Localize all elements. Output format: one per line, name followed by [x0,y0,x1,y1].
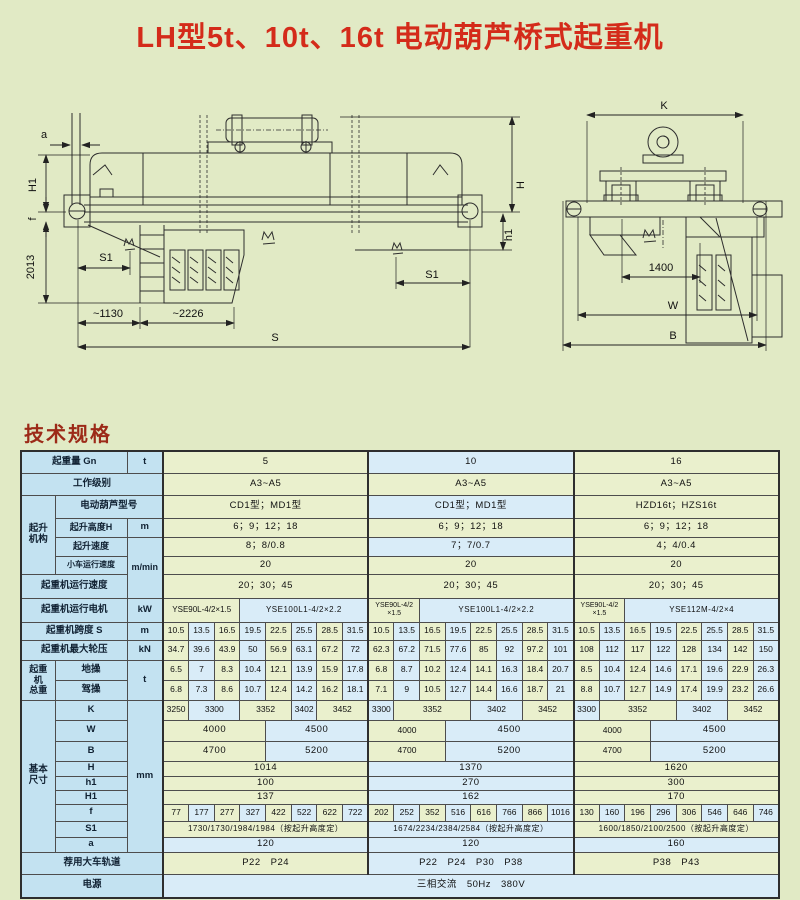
spec-label-cell: 起重机跨度 S [21,622,127,640]
dim-label-W: W [668,300,679,312]
spec-value-cell: 13.5 [394,622,420,640]
dim-label-f: f [27,217,39,221]
spec-value-cell: 120 [163,837,368,852]
spec-value-cell: 1730/1730/1984/1984（按起升高度定） [163,821,368,837]
spec-value-cell: 3402 [471,700,522,720]
spec-label-cell: mm [127,700,163,852]
spec-value-cell: 202 [368,804,394,821]
front-view-drawing: a H1 f 2013 S1 ~1130 ~2226 S H h1 S1 [25,113,527,347]
spec-value-cell: 19.9 [702,680,728,700]
spec-value-cell: 3300 [189,700,240,720]
spec-value-cell: 三相交流 50Hz 380V [163,874,779,898]
spec-value-cell: 21 [548,680,574,700]
spec-value-cell: 10.5 [574,622,600,640]
spec-value-cell: 300 [574,776,780,790]
spec-value-cell: 327 [240,804,266,821]
spec-value-cell: 277 [214,804,240,821]
spec-value-cell: 3300 [368,700,394,720]
spec-label-cell: B [55,741,127,761]
spec-value-cell: 14.2 [291,680,317,700]
spec-value-cell: 6.8 [368,660,394,680]
spec-value-cell: CD1型；MD1型 [368,495,573,518]
spec-value-cell: 8；8/0.8 [163,537,368,556]
spec-value-cell: 3300 [574,700,600,720]
spec-value-cell: 19.6 [702,660,728,680]
spec-value-cell: 19.5 [650,622,676,640]
spec-value-cell: 270 [368,776,573,790]
spec-value-cell: 196 [625,804,651,821]
dim-label-1400: 1400 [649,262,673,274]
dim-label-2013: 2013 [25,255,37,279]
spec-value-cell: 4；4/0.4 [574,537,780,556]
dim-label-S: S [271,332,278,344]
spec-value-cell: 6；9；12；18 [574,518,780,537]
spec-value-cell: 137 [163,790,368,804]
spec-value-cell: 4500 [266,720,369,741]
spec-value-cell: 296 [650,804,676,821]
spec-value-cell: 18.1 [343,680,369,700]
dim-label-B: B [669,330,676,342]
spec-label-cell: m/min [127,537,163,598]
spec-value-cell: 10.5 [163,622,189,640]
spec-value-cell: 7 [189,660,215,680]
spec-value-cell: 8.8 [574,680,600,700]
spec-value-cell: 16.5 [625,622,651,640]
section-mark [124,232,403,254]
cab-end-view [686,218,782,343]
spec-label-cell: W [55,720,127,741]
spec-value-cell: 866 [522,804,548,821]
spec-label-cell: t [127,451,163,473]
spec-value-cell: 50 [240,640,266,660]
spec-value-cell: 6.8 [163,680,189,700]
spec-value-cell: YSE100L1-4/2×2.2 [240,598,368,622]
spec-value-cell: CD1型；MD1型 [163,495,368,518]
spec-value-cell: 22.5 [676,622,702,640]
spec-value-cell: A3~A5 [163,473,368,495]
dim-label-S1-right: S1 [425,269,438,281]
spec-value-cell: 13.9 [291,660,317,680]
spec-value-cell: 130 [574,804,600,821]
spec-value-cell: 1600/1850/2100/2500（按起升高度定） [574,821,780,837]
spec-value-cell: P22 P24 [163,852,368,874]
spec-value-cell: 22.5 [471,622,497,640]
spec-value-cell: 3352 [394,700,471,720]
spec-value-cell: 722 [343,804,369,821]
section-mark [643,230,656,242]
dim-label-H1: H1 [27,178,39,192]
spec-value-cell: 100 [163,776,368,790]
spec-value-cell: YSE100L1-4/2×2.2 [420,598,574,622]
spec-value-cell: 63.1 [291,640,317,660]
spec-label-cell: 起升 机构 [21,495,55,574]
trolley-crossbeam [600,171,726,181]
spec-value-cell: 92 [497,640,523,660]
technical-drawings: a H1 f 2013 S1 ~1130 ~2226 S H h1 S1 [0,85,800,415]
spec-value-cell: 4000 [368,720,445,741]
spec-value-cell: 160 [599,804,625,821]
spec-value-cell: 8.3 [214,660,240,680]
spec-value-cell: 3402 [291,700,317,720]
spec-value-cell: 1674/2234/2384/2584（按起升高度定） [368,821,573,837]
bridge-platform [566,201,782,217]
spec-value-cell: 7.3 [189,680,215,700]
dim-label-K: K [660,100,668,112]
spec-value-cell: 112 [599,640,625,660]
spec-value-cell: 6；9；12；18 [163,518,368,537]
spec-value-cell: 128 [676,640,702,660]
spec-value-cell: 28.5 [317,622,343,640]
spec-value-cell: 122 [650,640,676,660]
spec-value-cell: 12.7 [445,680,471,700]
spec-value-cell: 56.9 [266,640,292,660]
dim-label-1130: ~1130 [93,308,123,320]
spec-value-cell: 26.6 [753,680,779,700]
spec-value-cell: 85 [471,640,497,660]
spec-value-cell: 19.5 [445,622,471,640]
spec-value-cell: 39.6 [189,640,215,660]
spec-value-cell: 10 [368,451,573,473]
catalog-page: { "header": { "title": "LH型5t、10t、16t 电动… [0,0,800,900]
spec-label-cell: 起重机运行速度 [21,574,127,598]
spec-value-cell: 16.6 [497,680,523,700]
spec-label-cell: m [127,518,163,537]
spec-label-cell: 荐用大车轨道 [21,852,163,874]
spec-value-cell: 20.7 [548,660,574,680]
spec-value-cell: 22.5 [266,622,292,640]
spec-value-cell: 522 [291,804,317,821]
spec-value-cell: 12.4 [266,680,292,700]
spec-value-cell: 28.5 [522,622,548,640]
spec-value-cell: 108 [574,640,600,660]
dim-label-S1-left: S1 [99,252,112,264]
spec-value-cell: 20；30；45 [574,574,780,598]
spec-label-cell: 起升速度 [55,537,127,556]
spec-label-cell: t [127,660,163,700]
spec-value-cell: 28.5 [727,622,753,640]
spec-value-cell: 3250 [163,700,189,720]
spec-value-cell: 622 [317,804,343,821]
spec-value-cell: 31.5 [548,622,574,640]
spec-value-cell: 6.5 [163,660,189,680]
hoist-motor [648,127,678,157]
spec-label-cell: 驾操 [55,680,127,700]
spec-label-cell: S1 [55,821,127,837]
spec-value-cell: 422 [266,804,292,821]
spec-value-cell: 13.5 [189,622,215,640]
spec-value-cell: 31.5 [343,622,369,640]
spec-value-cell: 10.2 [420,660,446,680]
spec-value-cell: YSE112M-4/2×4 [625,598,779,622]
spec-value-cell: 7；7/0.7 [368,537,573,556]
spec-value-cell: 8.7 [394,660,420,680]
spec-value-cell: 20；30；45 [163,574,368,598]
spec-value-cell: 34.7 [163,640,189,660]
spec-value-cell: 150 [753,640,779,660]
spec-value-cell: 71.5 [420,640,446,660]
spec-value-cell: 5 [163,451,368,473]
spec-label-cell: f [55,804,127,821]
spec-value-cell: 4700 [368,741,445,761]
page-title: LH型5t、10t、16t 电动葫芦桥式起重机 [0,14,800,56]
spec-value-cell: 8.5 [574,660,600,680]
spec-value-cell: 120 [368,837,573,852]
spec-value-cell: 14.1 [471,660,497,680]
spec-value-cell: 5200 [266,741,369,761]
spec-value-cell: YSE90L-4/2 ×1.5 [368,598,419,622]
spec-value-cell: 1014 [163,761,368,776]
spec-value-cell: 16.3 [497,660,523,680]
spec-value-cell: A3~A5 [574,473,780,495]
section-heading: 技术规格 [24,418,112,447]
spec-value-cell: P38 P43 [574,852,780,874]
spec-value-cell: 20；30；45 [368,574,573,598]
spec-value-cell: 18.7 [522,680,548,700]
spec-value-cell: 15.9 [317,660,343,680]
spec-value-cell: 177 [189,804,215,821]
spec-value-cell: 4700 [574,741,651,761]
spec-value-cell: 646 [727,804,753,821]
spec-value-cell: 72 [343,640,369,660]
spec-value-cell: 3402 [676,700,727,720]
spec-label-cell: H1 [55,790,127,804]
bridge-wheel [462,203,478,219]
spec-value-cell: 134 [702,640,728,660]
spec-value-cell: 67.2 [317,640,343,660]
spec-value-cell: 746 [753,804,779,821]
spec-value-cell: 20 [574,556,780,574]
spec-value-cell: 10.4 [240,660,266,680]
cab [164,230,244,303]
spec-label-cell: 电动葫芦型号 [55,495,163,518]
spec-value-cell: 16.2 [317,680,343,700]
spec-label-cell: kN [127,640,163,660]
spec-label-cell: K [55,700,127,720]
dim-label-2226: ~2226 [173,308,204,320]
spec-value-cell: 14.6 [650,660,676,680]
spec-value-cell: 18.4 [522,660,548,680]
spec-value-cell: 10.5 [420,680,446,700]
spec-value-cell: 19.5 [240,622,266,640]
spec-value-cell: 3352 [599,700,676,720]
spec-value-cell: 12.1 [266,660,292,680]
spec-value-cell: 12.4 [445,660,471,680]
spec-value-cell: 16.5 [420,622,446,640]
spec-value-cell: 4700 [163,741,266,761]
dim-label-a: a [41,129,48,141]
spec-label-cell: a [55,837,127,852]
spec-label-cell: 基本 尺寸 [21,700,55,852]
spec-value-cell: 306 [676,804,702,821]
spec-value-cell: 766 [497,804,523,821]
spec-value-cell: 4000 [163,720,266,741]
spec-value-cell: 67.2 [394,640,420,660]
spec-value-cell: 516 [445,804,471,821]
spec-label-cell: 起重量 Gn [21,451,127,473]
spec-value-cell: 1016 [548,804,574,821]
spec-table: 起重量 Gnt51016工作级别A3~A5A3~A5A3~A5起升 机构电动葫芦… [20,450,780,899]
spec-value-cell: 4500 [445,720,573,741]
spec-value-cell: 23.2 [727,680,753,700]
dim-label-H: H [515,181,527,189]
spec-value-cell: 25.5 [702,622,728,640]
spec-value-cell: 77.6 [445,640,471,660]
spec-value-cell: 101 [548,640,574,660]
spec-label-cell: 起重 机 总重 [21,660,55,700]
spec-value-cell: 14.4 [471,680,497,700]
spec-label-cell: H [55,761,127,776]
spec-value-cell: YSE90L-4/2×1.5 [163,598,240,622]
spec-value-cell: HZD16t；HZS16t [574,495,780,518]
spec-value-cell: 17.1 [676,660,702,680]
spec-value-cell: 3452 [522,700,573,720]
spec-value-cell: 5200 [650,741,779,761]
spec-value-cell: 16 [574,451,780,473]
spec-value-cell: 25.5 [497,622,523,640]
spec-value-cell: 13.5 [599,622,625,640]
spec-value-cell: 16.5 [214,622,240,640]
spec-value-cell: 162 [368,790,573,804]
spec-value-cell: 26.3 [753,660,779,680]
spec-value-cell: 31.5 [753,622,779,640]
trolley-frame [208,142,332,153]
spec-label-cell: m [127,622,163,640]
dim-label-h1: h1 [503,229,515,241]
spec-value-cell: 97.2 [522,640,548,660]
spec-value-cell: 160 [574,837,780,852]
spec-value-cell: 142 [727,640,753,660]
spec-value-cell: 6；9；12；18 [368,518,573,537]
spec-value-cell: 170 [574,790,780,804]
spec-value-cell: 17.8 [343,660,369,680]
spec-value-cell: 25.5 [291,622,317,640]
spec-value-cell: 8.6 [214,680,240,700]
spec-value-cell: 14.9 [650,680,676,700]
spec-label-cell: 起升高度H [55,518,127,537]
spec-value-cell: 4000 [574,720,651,741]
spec-value-cell: 3452 [727,700,779,720]
spec-value-cell: 12.7 [625,680,651,700]
spec-value-cell: 117 [625,640,651,660]
end-view-drawing: K [563,100,782,351]
spec-label-cell: kW [127,598,163,622]
spec-label-cell: 电源 [21,874,163,898]
spec-value-cell: 352 [420,804,446,821]
spec-value-cell: YSE90L-4/2 ×1.5 [574,598,625,622]
spec-value-cell: 546 [702,804,728,821]
spec-value-cell: A3~A5 [368,473,573,495]
ladder [140,225,164,303]
spec-value-cell: 1370 [368,761,573,776]
spec-value-cell: 252 [394,804,420,821]
spec-value-cell: 5200 [445,741,573,761]
spec-value-cell: 3452 [317,700,368,720]
spec-value-cell: 22.9 [727,660,753,680]
spec-label-cell: 地操 [55,660,127,680]
spec-value-cell: 20 [368,556,573,574]
spec-value-cell: 20 [163,556,368,574]
spec-label-cell: 小车运行速度 [55,556,127,574]
spec-value-cell: 10.7 [599,680,625,700]
spec-label-cell: 工作级别 [21,473,163,495]
spec-value-cell: 43.9 [214,640,240,660]
spec-value-cell: 7.1 [368,680,394,700]
spec-value-cell: 62.3 [368,640,394,660]
spec-table-body: 起重量 Gnt51016工作级别A3~A5A3~A5A3~A5起升 机构电动葫芦… [21,451,779,898]
spec-label-cell: 起重机运行电机 [21,598,127,622]
spec-value-cell: 1620 [574,761,780,776]
spec-value-cell: 616 [471,804,497,821]
spec-value-cell: 12.4 [625,660,651,680]
spec-value-cell: 10.5 [368,622,394,640]
spec-value-cell: P22 P24 P30 P38 [368,852,573,874]
spec-label-cell: 起重机最大轮压 [21,640,127,660]
spec-value-cell: 3352 [240,700,291,720]
spec-value-cell: 17.4 [676,680,702,700]
spec-value-cell: 10.4 [599,660,625,680]
spec-value-cell: 77 [163,804,189,821]
spec-value-cell: 9 [394,680,420,700]
spec-value-cell: 10.7 [240,680,266,700]
spec-label-cell: h1 [55,776,127,790]
spec-value-cell: 4500 [650,720,779,741]
